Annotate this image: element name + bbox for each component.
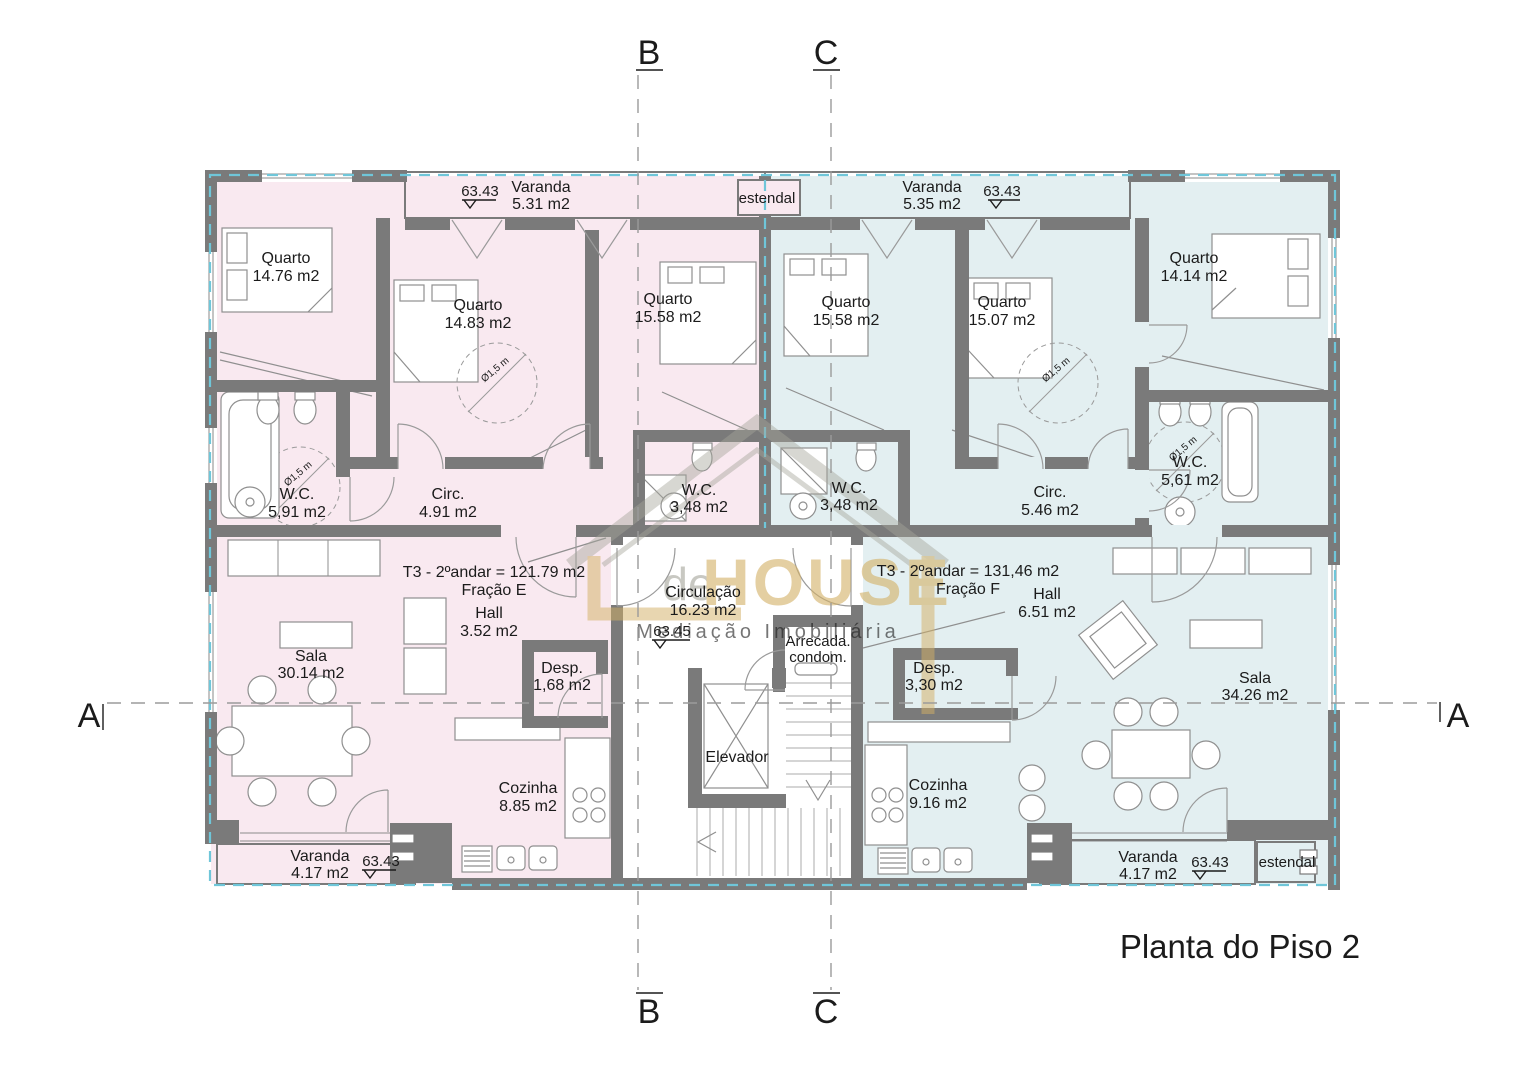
level-bottom-right: 63.43	[1191, 854, 1229, 871]
label-circulacao-area: 16.23 m2	[670, 602, 737, 619]
label-fraction-f: Fração F	[936, 581, 1000, 598]
label-quarto3-f-area: 14.14 m2	[1161, 268, 1228, 285]
label-quarto1-e-name: Quarto	[262, 250, 311, 267]
label-circ-f-name: Circ.	[1034, 484, 1067, 501]
label-wc-main-e-name: W.C.	[280, 486, 315, 503]
label-quarto2-f-area: 15.07 m2	[969, 312, 1036, 329]
watermark-brand: HOUSE	[702, 545, 952, 619]
label-quarto2-f-name: Quarto	[978, 294, 1027, 311]
label-wc-small-f-area: 3,48 m2	[820, 497, 878, 514]
label-desp-f-name: Desp.	[913, 660, 955, 677]
label-wc-main-e-area: 5,91 m2	[268, 504, 326, 521]
section-marker-a-left: A	[78, 697, 101, 735]
level-stair: 63.45	[653, 623, 691, 640]
label-varanda-bottom-f-area: 4.17 m2	[1119, 866, 1177, 883]
label-fraction-e: Fração E	[462, 582, 527, 599]
level-top-right: 63.43	[983, 183, 1021, 200]
label-circ-e-area: 4.91 m2	[419, 504, 477, 521]
label-varanda-top-e-name: Varanda	[511, 179, 570, 196]
label-cozinha-e-name: Cozinha	[499, 780, 558, 797]
label-quarto1-f-area: 15.58 m2	[813, 312, 880, 329]
label-wc-main-f-area: 5,61 m2	[1161, 472, 1219, 489]
bed-f-quarto3	[1212, 234, 1320, 318]
label-circ-f-area: 5.46 m2	[1021, 502, 1079, 519]
label-desp-e-area: 1,68 m2	[533, 677, 591, 694]
label-hall-f-name: Hall	[1033, 586, 1061, 603]
label-varanda-top-f-area: 5.35 m2	[903, 196, 961, 213]
label-quarto3-f-name: Quarto	[1170, 250, 1219, 267]
label-varanda-bottom-e-area: 4.17 m2	[291, 865, 349, 882]
label-desp-e-name: Desp.	[541, 660, 583, 677]
label-summary-f: T3 - 2ºandar = 131,46 m2	[877, 563, 1060, 580]
floor-plan-page: de HOUSE Mediação Imobiliária B C B C A …	[0, 0, 1528, 1080]
label-quarto2-e-area: 14.83 m2	[445, 315, 512, 332]
label-circulacao-name: Circulação	[665, 584, 741, 601]
label-varanda-top-e-area: 5.31 m2	[512, 196, 570, 213]
label-varanda-top-f-name: Varanda	[902, 179, 961, 196]
label-quarto3-e-name: Quarto	[644, 291, 693, 308]
label-arrecada-line2: condom.	[789, 649, 847, 666]
label-varanda-bottom-e-name: Varanda	[290, 848, 349, 865]
page-title: Planta do Piso 2	[1120, 928, 1360, 965]
label-quarto2-e-name: Quarto	[454, 297, 503, 314]
section-marker-a-right: A	[1447, 697, 1470, 735]
label-quarto1-f-name: Quarto	[822, 294, 871, 311]
label-sala-e-name: Sala	[295, 648, 327, 665]
label-sala-e-area: 30.14 m2	[278, 665, 345, 682]
label-desp-f-area: 3,30 m2	[905, 677, 963, 694]
label-hall-f-area: 6.51 m2	[1018, 604, 1076, 621]
label-summary-e: T3 - 2ºandar = 121.79 m2	[403, 564, 586, 581]
floor-plan-drawing: de HOUSE Mediação Imobiliária B C B C A …	[0, 0, 1528, 1080]
label-arrecada-line1: Arrecada.	[785, 633, 850, 650]
label-quarto1-e-area: 14.76 m2	[253, 268, 320, 285]
label-wc-small-f-name: W.C.	[832, 480, 867, 497]
section-marker-b-top: B	[638, 34, 661, 72]
section-marker-b-bottom: B	[638, 993, 661, 1031]
label-estendal-top: estendal	[739, 190, 796, 207]
label-cozinha-f-name: Cozinha	[909, 777, 968, 794]
label-quarto3-e-area: 15.58 m2	[635, 309, 702, 326]
label-estendal-bottom: estendal	[1259, 854, 1316, 871]
label-wc-small-e-name: W.C.	[682, 482, 717, 499]
label-varanda-bottom-f-name: Varanda	[1118, 849, 1177, 866]
section-marker-c-bottom: C	[814, 993, 839, 1031]
label-cozinha-f-area: 9.16 m2	[909, 795, 967, 812]
level-top-left: 63.43	[461, 183, 499, 200]
section-marker-c-top: C	[814, 34, 839, 72]
label-sala-f-name: Sala	[1239, 670, 1271, 687]
label-elevador: Elevador	[705, 749, 769, 766]
label-wc-small-e-area: 3,48 m2	[670, 499, 728, 516]
label-circ-e-name: Circ.	[432, 486, 465, 503]
level-bottom-left: 63.43	[362, 853, 400, 870]
label-hall-e-area: 3.52 m2	[460, 623, 518, 640]
label-cozinha-e-area: 8.85 m2	[499, 798, 557, 815]
label-sala-f-area: 34.26 m2	[1222, 687, 1289, 704]
label-hall-e-name: Hall	[475, 605, 503, 622]
